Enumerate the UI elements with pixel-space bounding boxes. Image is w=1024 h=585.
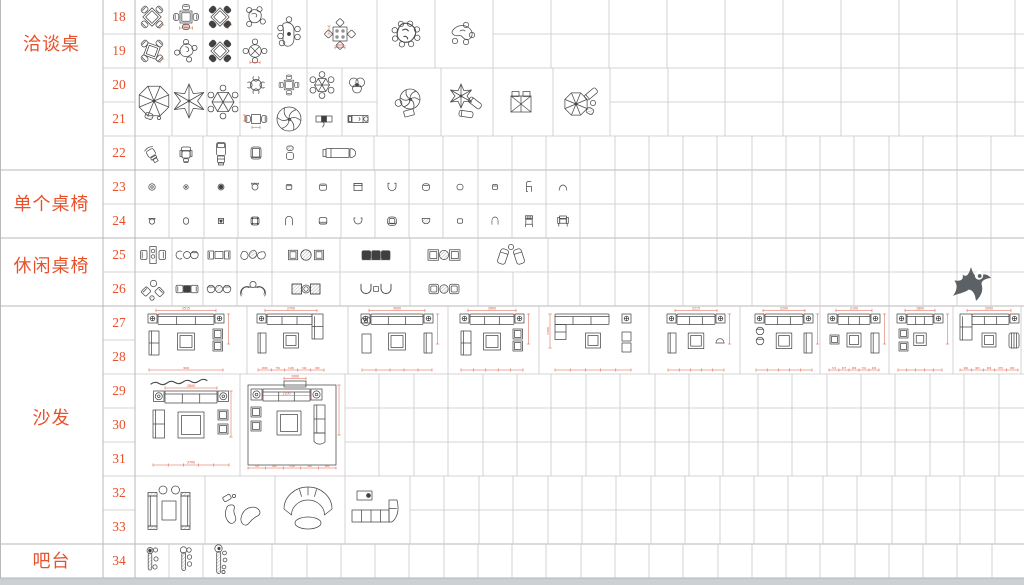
- lounge-set-dark-square: [176, 285, 198, 293]
- organic-table-4-chairs: [173, 38, 200, 65]
- category-label-leisure-table-chair: 休闲桌椅: [0, 255, 103, 277]
- chair-dot: [184, 185, 188, 189]
- square-table-diamond-chairs: 800: [324, 18, 355, 49]
- row-number: 19: [103, 34, 135, 68]
- lounge-set-chairs-square: [208, 251, 230, 259]
- category-label-single-table-chair: 单个桌椅: [0, 193, 103, 215]
- parasol-pinwheel: [277, 107, 301, 131]
- parasol-hex-chairs: [208, 85, 238, 119]
- svg-text:720: 720: [255, 465, 260, 468]
- chair-rsq-base: [319, 218, 327, 224]
- row-number: 33: [103, 510, 135, 544]
- club-chair: [251, 147, 261, 159]
- sofa-set: 2200: [755, 306, 819, 371]
- svg-text:2215: 2215: [692, 306, 700, 310]
- sofa-set: 270016507501100340900: [257, 306, 324, 371]
- sheet-bottom-edge: [0, 578, 1024, 585]
- bar-counter-stools: [147, 548, 158, 571]
- bar-counter-stools: [180, 547, 191, 571]
- svg-text:3000: 3000: [183, 367, 189, 370]
- lounge-set-u-chairs: [361, 284, 391, 293]
- sofa-modular-l: [352, 491, 398, 522]
- svg-text:2100: 2100: [850, 306, 858, 310]
- svg-text:2515: 2515: [182, 306, 190, 310]
- chair-square-dot: [218, 218, 223, 223]
- round-table-4-c-chairs: [248, 77, 265, 94]
- row-number: 18: [103, 0, 135, 34]
- chair-side-profile: [527, 182, 532, 192]
- row-number: 27: [103, 306, 135, 340]
- row-number: 28: [103, 340, 135, 374]
- sofa-set: 3300: [546, 314, 631, 371]
- round-table-4-chairs: [243, 39, 267, 64]
- sofa-set-large-a: 28003700: [151, 379, 233, 466]
- chair-rsq: [320, 184, 327, 190]
- cad-canvas[interactable]: 8008002515300027001650750110034090030002…: [0, 0, 1024, 585]
- sofa-set: 2000900963900878900: [960, 306, 1019, 371]
- lounge-set-recliners: [497, 244, 525, 264]
- x-table-4-chairs: [140, 39, 164, 63]
- square-table-4-chairs: [279, 75, 299, 95]
- svg-text:2200: 2200: [780, 306, 788, 310]
- row-number: 20: [103, 68, 135, 102]
- x-table-4-chairs: [140, 5, 164, 29]
- bar-counter-stools: [215, 545, 227, 574]
- office-chair-angled: [144, 146, 158, 163]
- row-number: 25: [103, 238, 135, 272]
- svg-text:1100: 1100: [288, 367, 294, 370]
- chair-two-piece: [286, 146, 293, 160]
- row-number: 22: [103, 136, 135, 170]
- svg-text:1650: 1650: [262, 367, 268, 370]
- double-lounger-canopy: [511, 92, 531, 113]
- svg-text:1800: 1800: [916, 306, 924, 310]
- furniture-block-sheet: 8008002515300027001650750110034090030002…: [0, 0, 1024, 585]
- sofa-set: 1800: [897, 306, 949, 371]
- sofa-set: 2215: [667, 306, 731, 371]
- chair-square-xs: [492, 185, 497, 190]
- category-label-bar-counter: 吧台: [0, 550, 103, 572]
- daybed-wide: [323, 149, 356, 158]
- square-table-2-chairs: [243, 115, 267, 130]
- sofa-pair-table-set: [148, 486, 190, 530]
- lounge-set-bench-dark: [362, 251, 390, 260]
- sofa-set-large-b: 100022007209001200900800: [248, 374, 341, 469]
- organic-table-8-chairs: [392, 21, 420, 47]
- chair-back-striped: [525, 216, 532, 227]
- chair-cushion: [251, 217, 259, 225]
- svg-text:3300: 3300: [546, 327, 550, 335]
- svg-text:800: 800: [325, 465, 330, 468]
- svg-text:963: 963: [975, 367, 980, 370]
- lounge-set-three-blobs: [239, 249, 267, 260]
- svg-text:750: 750: [276, 367, 281, 370]
- lounge-set-three-round: [176, 251, 198, 259]
- x-table-4-chairs: [208, 39, 231, 62]
- organic-table-4-chairs: [247, 7, 266, 27]
- svg-text:900: 900: [852, 367, 857, 370]
- category-label-negotiation-tables: 洽谈桌: [0, 33, 103, 55]
- chair-rsq-xs: [458, 219, 463, 223]
- row-number: 34: [103, 544, 135, 578]
- lounge-set-angled-chairs: [141, 280, 165, 300]
- svg-text:900: 900: [987, 367, 992, 370]
- x-table-4-chairs: [208, 5, 232, 29]
- lounge-set-hatch-squares: [292, 284, 320, 294]
- sofa-set: 2600: [460, 306, 530, 371]
- svg-text:2000: 2000: [985, 306, 993, 310]
- chair-arch: [285, 216, 292, 225]
- bench-figure: [316, 116, 332, 127]
- chair-armchair-front: [558, 216, 569, 226]
- lounge-set-round-hatch: [207, 285, 231, 293]
- chair-ring: [149, 184, 155, 190]
- svg-text:200: 200: [872, 367, 877, 370]
- svg-text:900: 900: [315, 367, 320, 370]
- svg-text:1200: 1200: [289, 465, 295, 468]
- oval-table-6-chairs: [278, 17, 301, 46]
- row-number: 30: [103, 408, 135, 442]
- grid-lines: [0, 0, 1024, 578]
- chair-rounded: [422, 184, 429, 191]
- row-number: 26: [103, 272, 135, 306]
- lounge-set-curved-chairs: [238, 281, 267, 296]
- kidney-table-4-chairs: [452, 22, 475, 44]
- lounge-set-square-hatch: [428, 250, 460, 260]
- row-number: 24: [103, 204, 135, 238]
- svg-text:878: 878: [998, 367, 1003, 370]
- category-label-sofa: 沙发: [0, 407, 103, 429]
- row-number: 31: [103, 442, 135, 476]
- lounge-set-hatch-round-wide: [289, 250, 324, 260]
- svg-text:900: 900: [307, 465, 312, 468]
- sofa-bean-set: [222, 494, 260, 525]
- recliner-vertical: [217, 143, 226, 166]
- svg-text:800: 800: [337, 43, 343, 47]
- sofa-curved-arc: [284, 487, 332, 529]
- svg-text:3700: 3700: [187, 461, 195, 465]
- svg-text:900: 900: [1010, 367, 1015, 370]
- chair-oval: [183, 218, 188, 225]
- chair-bowl-hatch: [422, 218, 430, 223]
- svg-text:791: 791: [862, 367, 867, 370]
- sofa-set: 3000: [361, 306, 439, 371]
- chair-armchair-round: [388, 217, 397, 225]
- lounge-set-compact: [141, 247, 166, 264]
- parasol-star-loungers: [451, 84, 483, 118]
- chair-arch-small: [492, 217, 498, 224]
- chair-cup-small: [149, 218, 155, 224]
- row-number: 32: [103, 476, 135, 510]
- svg-text:2200: 2200: [282, 391, 290, 395]
- chair-bowl: [354, 218, 362, 224]
- svg-text:900: 900: [964, 367, 969, 370]
- table-three-lobe: [349, 78, 364, 93]
- svg-text:3000: 3000: [393, 306, 401, 310]
- chair-rsq-small: [286, 185, 292, 190]
- row-number: 29: [103, 374, 135, 408]
- sofa-set: 25153000: [148, 306, 230, 371]
- svg-text:800: 800: [183, 24, 189, 28]
- chair-dome: [559, 185, 567, 190]
- chair-filled: [218, 184, 224, 190]
- parasol-pinwheel-chair: [395, 89, 420, 117]
- row-number: 21: [103, 102, 135, 136]
- parasol-8-rib: [139, 86, 169, 120]
- chair-u-shape: [388, 183, 396, 190]
- square-table-4-chairs: 800: [174, 5, 199, 30]
- svg-text:2800: 2800: [187, 384, 195, 388]
- svg-text:721: 721: [832, 367, 837, 370]
- chair-square-back: [354, 183, 362, 190]
- parasol-hex-chairs: [310, 72, 334, 99]
- svg-text:340: 340: [302, 367, 307, 370]
- svg-text:677: 677: [842, 367, 847, 370]
- chair-cup: [252, 183, 259, 190]
- chair-rounded-small: [457, 184, 463, 190]
- parasol-star-6: [174, 84, 203, 118]
- sofa-set: 2100721677900791200: [828, 306, 886, 371]
- row-number: 23: [103, 170, 135, 204]
- svg-text:2600: 2600: [488, 306, 496, 310]
- office-chair-front: [180, 147, 192, 163]
- svg-text:2700: 2700: [287, 306, 295, 310]
- parasol-lounge-set: [565, 87, 598, 115]
- daybed-small: [348, 116, 368, 123]
- svg-text:1000: 1000: [291, 374, 299, 378]
- svg-text:900: 900: [272, 465, 277, 468]
- lounge-set-cushion-hatch: [429, 284, 459, 294]
